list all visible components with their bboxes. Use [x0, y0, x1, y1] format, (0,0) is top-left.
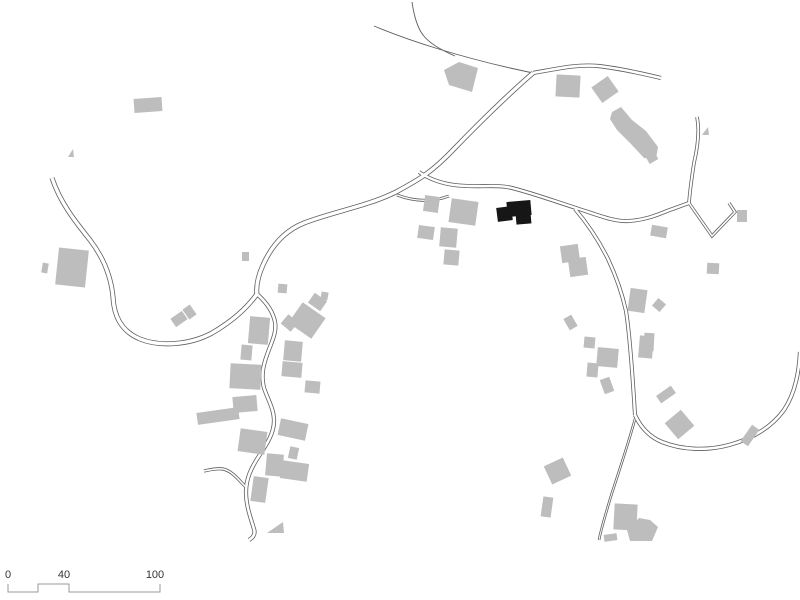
building: [644, 333, 655, 351]
building: [737, 210, 747, 222]
building: [610, 107, 658, 159]
building: [652, 298, 666, 312]
building: [229, 363, 261, 390]
building: [68, 149, 74, 157]
building: [443, 249, 459, 265]
building: [238, 428, 268, 455]
building: [448, 198, 478, 226]
building: [240, 345, 252, 361]
building: [288, 446, 299, 460]
building: [196, 407, 239, 425]
building: [591, 76, 618, 103]
building: [584, 337, 596, 349]
scale-label-40: 40: [58, 569, 70, 581]
building: [596, 347, 619, 368]
building: [283, 340, 303, 361]
highlight-building: [496, 200, 531, 225]
building: [600, 377, 615, 395]
building: [423, 195, 440, 213]
building: [665, 410, 695, 440]
roads-fill-layer: [52, 66, 800, 540]
building: [305, 380, 321, 393]
building: [278, 418, 309, 440]
building: [656, 386, 676, 404]
building: [702, 127, 709, 135]
scale-bar: 040100: [5, 569, 164, 592]
road-east-road: [533, 66, 661, 78]
building: [281, 361, 302, 378]
site-plan-map: 040100: [0, 0, 800, 600]
scale-bar-line: [8, 584, 160, 592]
building: [280, 460, 309, 482]
building: [41, 263, 49, 274]
road-main-sweep-road: [257, 73, 533, 295]
building: [278, 284, 288, 294]
highlighted-building: [516, 212, 532, 224]
building: [242, 252, 249, 261]
building: [586, 363, 598, 378]
building: [555, 74, 580, 97]
building: [544, 457, 571, 484]
building: [267, 522, 284, 533]
building: [568, 257, 588, 277]
building: [250, 476, 268, 503]
building: [134, 97, 163, 113]
building: [541, 496, 554, 517]
building: [248, 316, 270, 345]
road-surface-street-spur: [204, 469, 247, 488]
building: [55, 248, 89, 288]
building: [604, 533, 618, 542]
building: [320, 291, 328, 300]
road-street-spur: [204, 469, 247, 488]
road-surface-zigzag-lane: [689, 203, 735, 236]
road-surface-main-sweep-road: [257, 73, 533, 295]
building: [650, 225, 668, 239]
roads-casing-layer: [52, 2, 800, 540]
building: [417, 225, 435, 240]
building: [627, 288, 647, 313]
buildings-layer: [41, 62, 759, 542]
building: [563, 315, 577, 331]
scale-label-100: 100: [146, 569, 164, 581]
building: [707, 263, 720, 275]
scale-label-0: 0: [5, 569, 11, 581]
site-plan: 040100: [0, 0, 800, 600]
building: [444, 62, 478, 92]
building: [439, 227, 458, 247]
